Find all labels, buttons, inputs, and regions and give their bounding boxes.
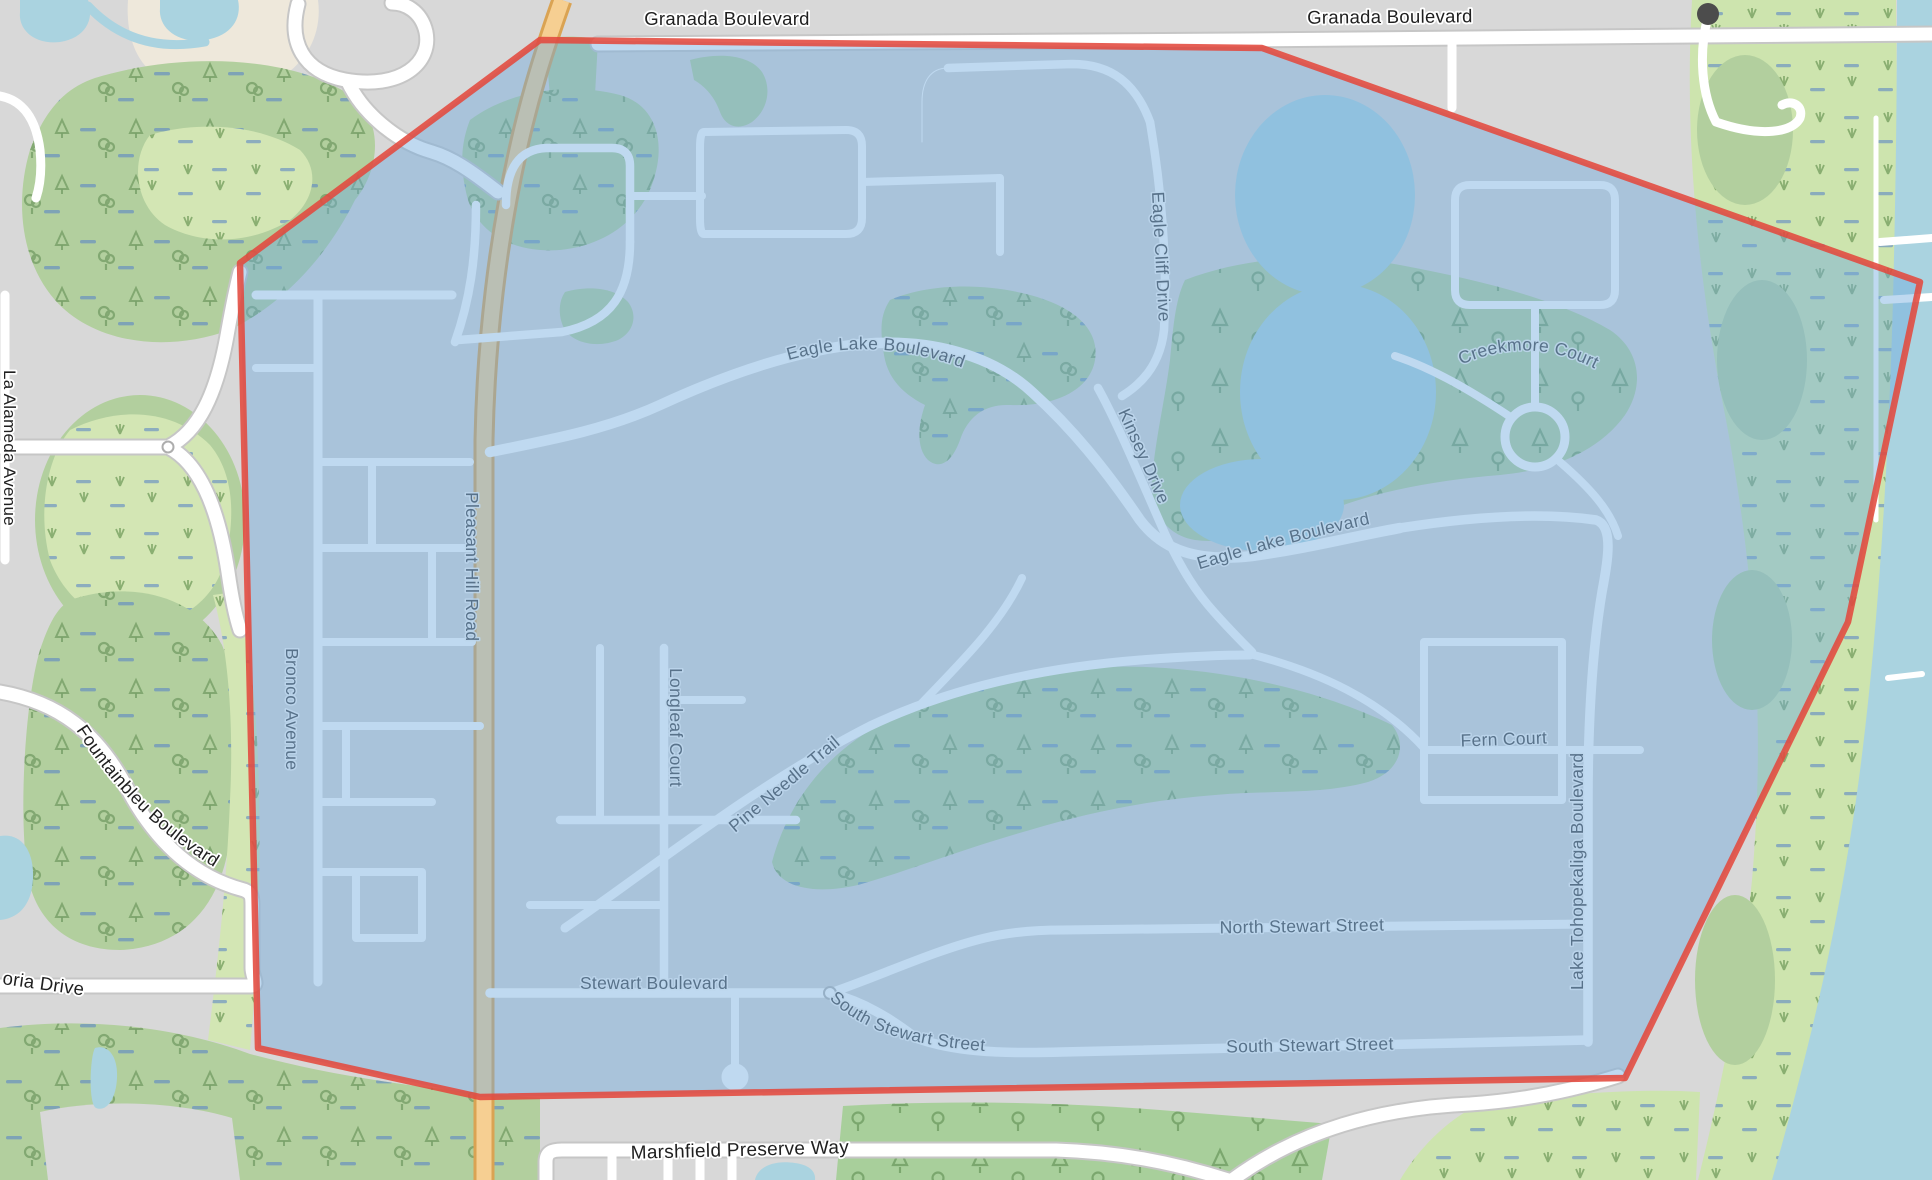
road-label-granada-boulevard-2: Granada Boulevard <box>1307 5 1473 27</box>
road-label-bronco-avenue: Bronco Avenue <box>282 648 302 770</box>
map-svg[interactable]: Granada Boulevard Granada Boulevard Eagl… <box>0 0 1932 1180</box>
map-canvas[interactable]: Granada Boulevard Granada Boulevard Eagl… <box>0 0 1932 1180</box>
road-label-stewart-boulevard: Stewart Boulevard <box>580 973 728 993</box>
map-node-dot <box>1697 3 1719 25</box>
road-label-pleasant-hill-road: Pleasant Hill Road <box>462 492 482 641</box>
road-label-south-stewart-street-2: South Stewart Street <box>1226 1034 1394 1057</box>
road-label-north-stewart-street: North Stewart Street <box>1219 915 1384 938</box>
road-label-fern-court: Fern Court <box>1460 727 1547 750</box>
road-label-lake-tohopekaliga-boulevard: Lake Tohopekaliga Boulevard <box>1567 753 1587 990</box>
road-label-la-alameda-avenue: La Alameda Avenue <box>0 370 19 526</box>
region-boundary-polygon[interactable] <box>240 40 1920 1097</box>
road-label-granada-boulevard-1: Granada Boulevard <box>644 8 810 29</box>
road-label-longleaf-court: Longleaf Court <box>666 668 686 787</box>
